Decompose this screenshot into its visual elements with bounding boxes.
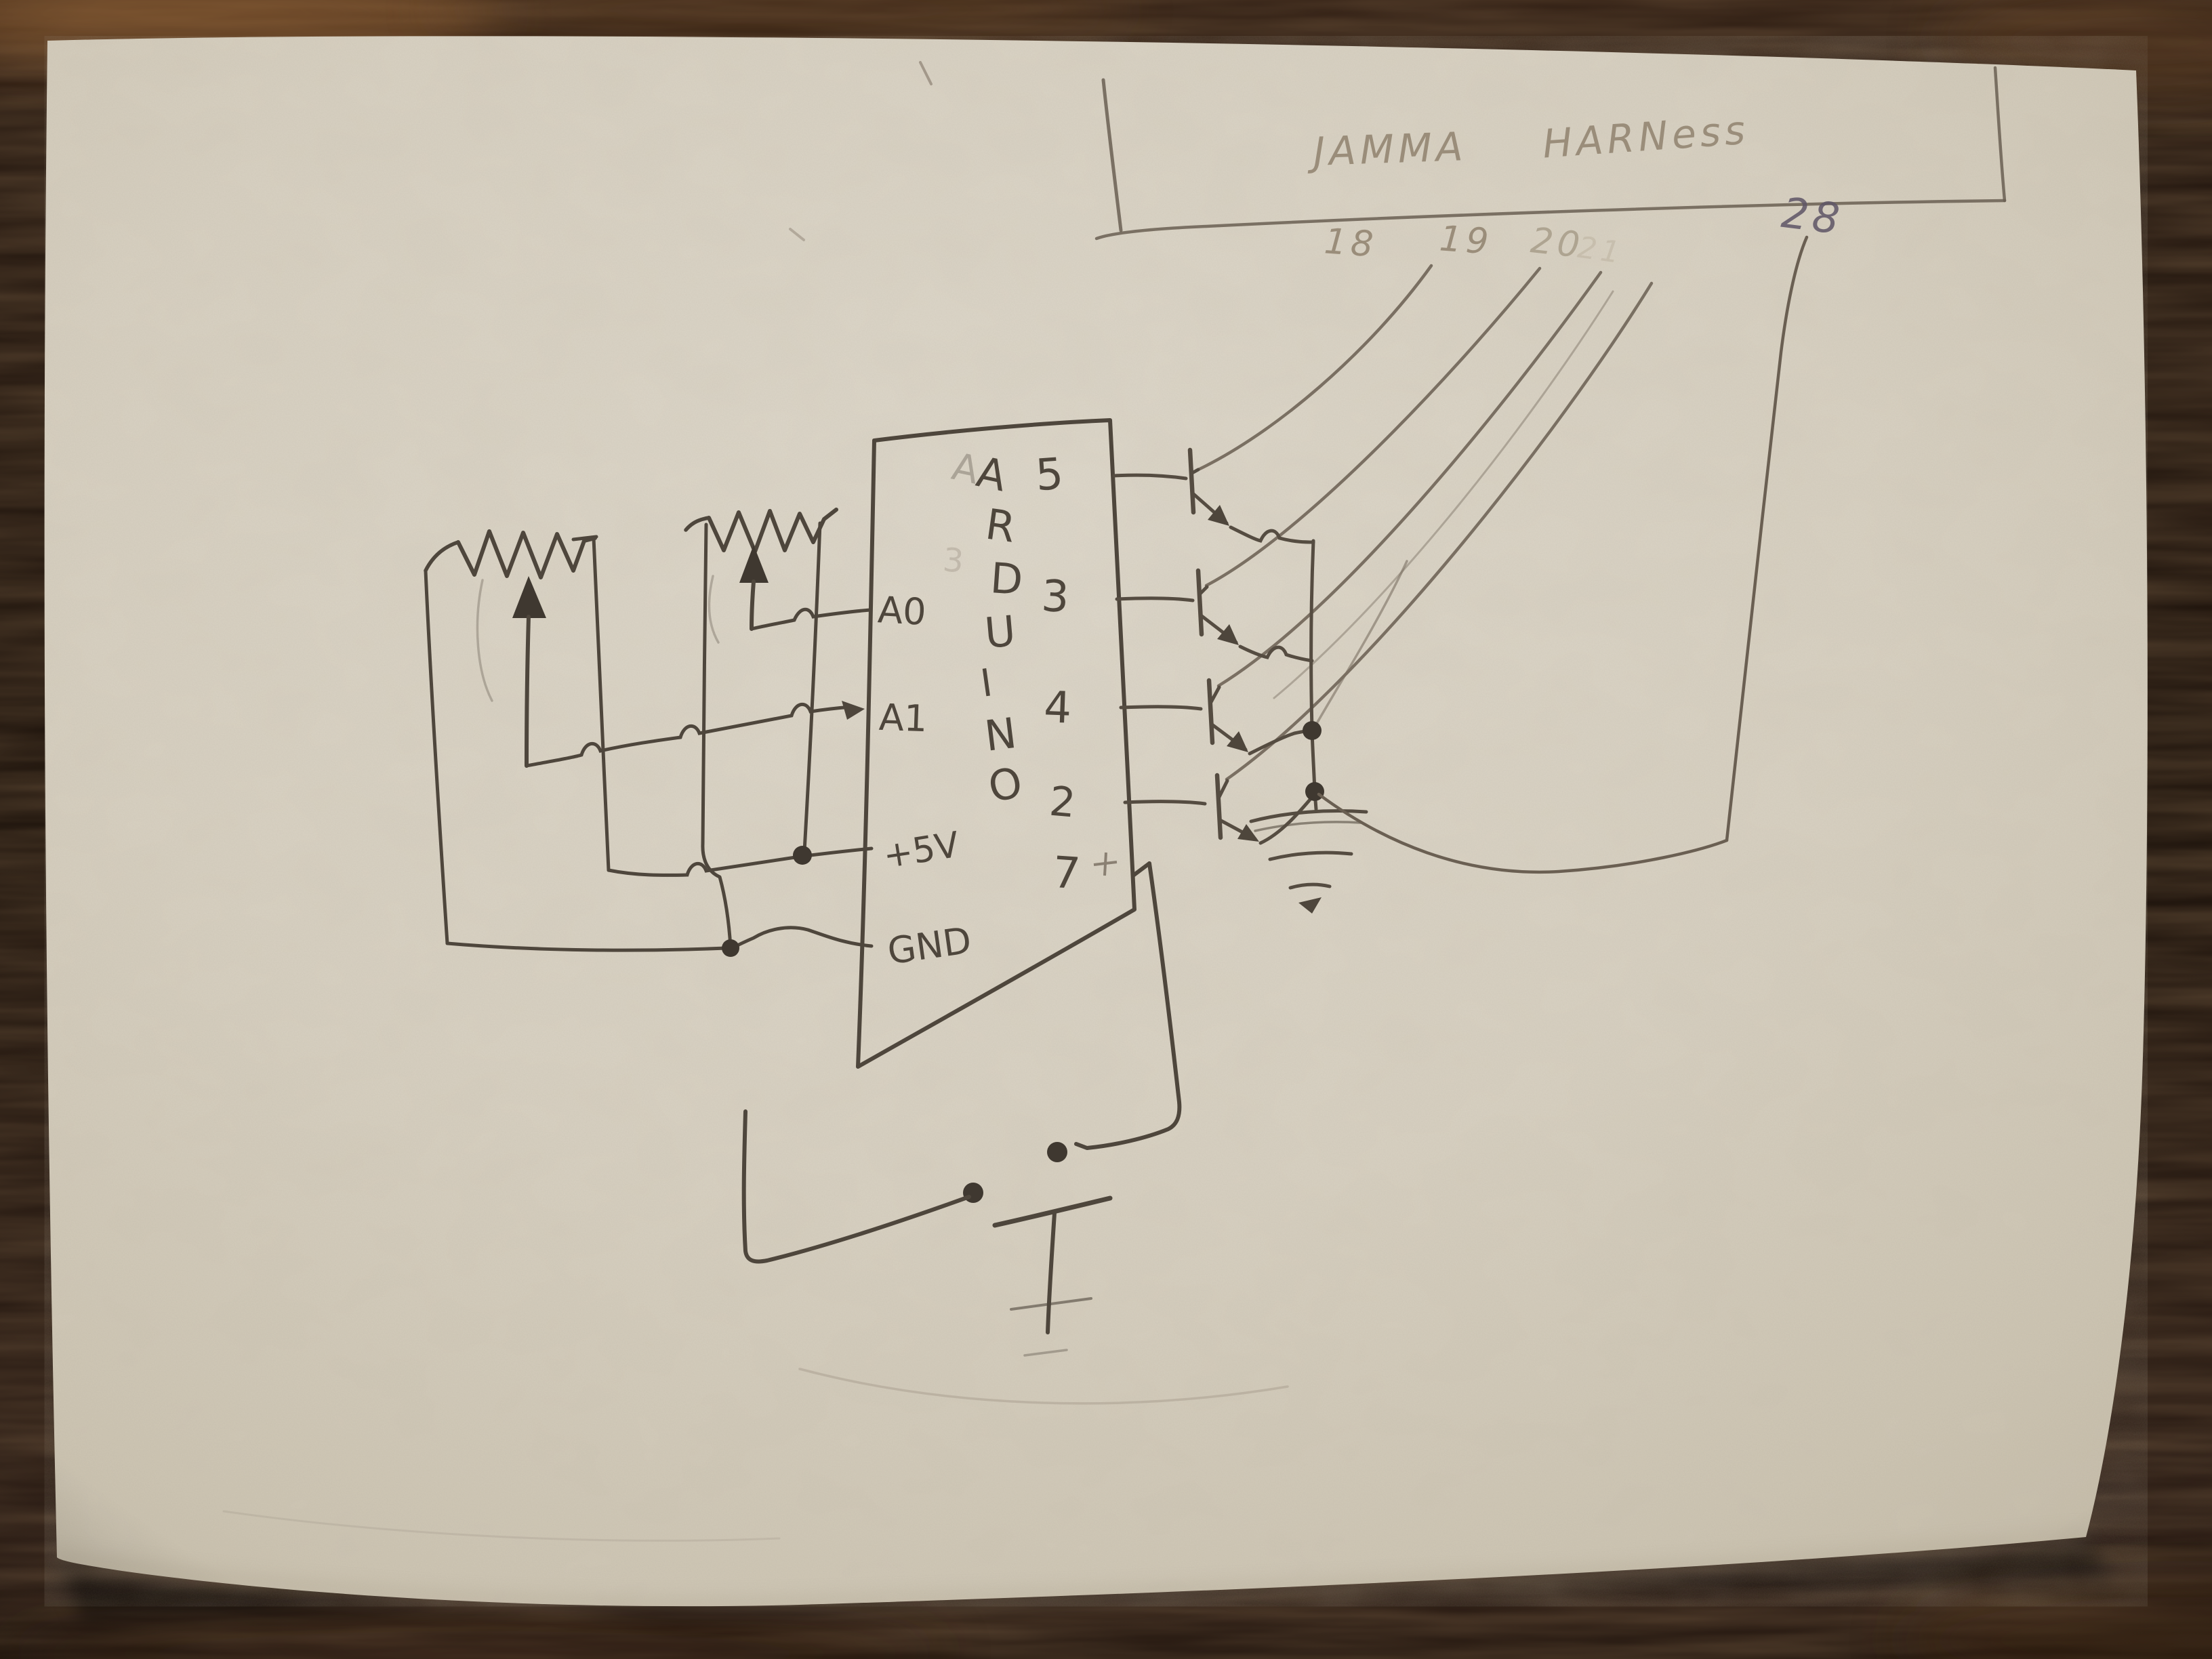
photo-of-paper-schematic: JAMMA HARNess 18 19 20 21 28 A 3 A R D U… bbox=[0, 0, 2212, 1659]
photo-vignette bbox=[0, 0, 2212, 1659]
circuit-sketch-canvas: JAMMA HARNess 18 19 20 21 28 A 3 A R D U… bbox=[0, 0, 2212, 1659]
